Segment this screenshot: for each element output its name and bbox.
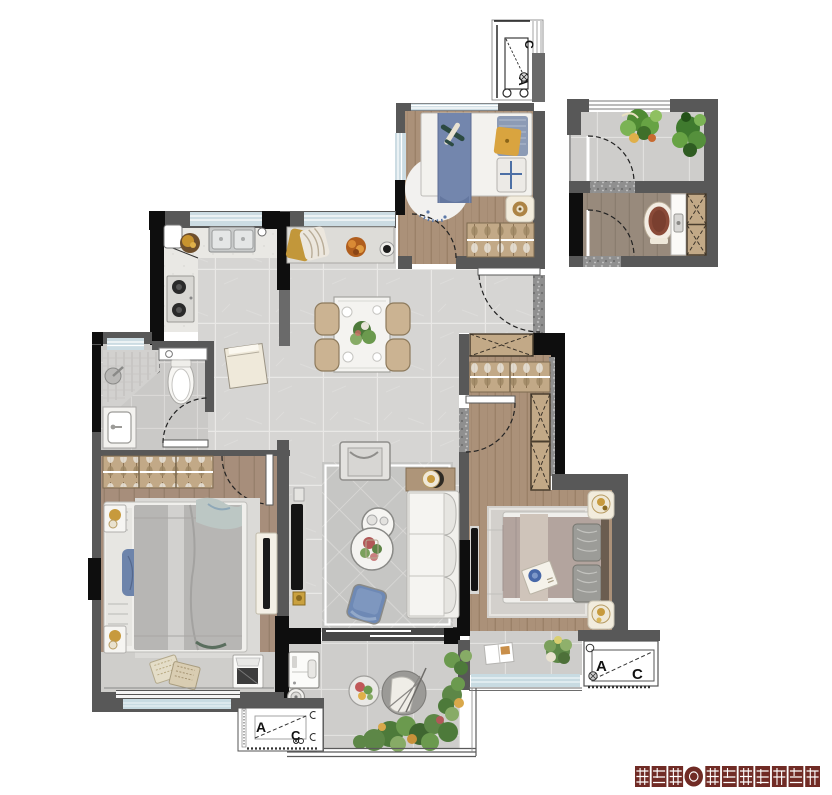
svg-text:C: C <box>522 40 536 49</box>
svg-text:A: A <box>256 719 266 735</box>
svg-text:A: A <box>596 658 607 675</box>
svg-text:C: C <box>632 666 643 683</box>
